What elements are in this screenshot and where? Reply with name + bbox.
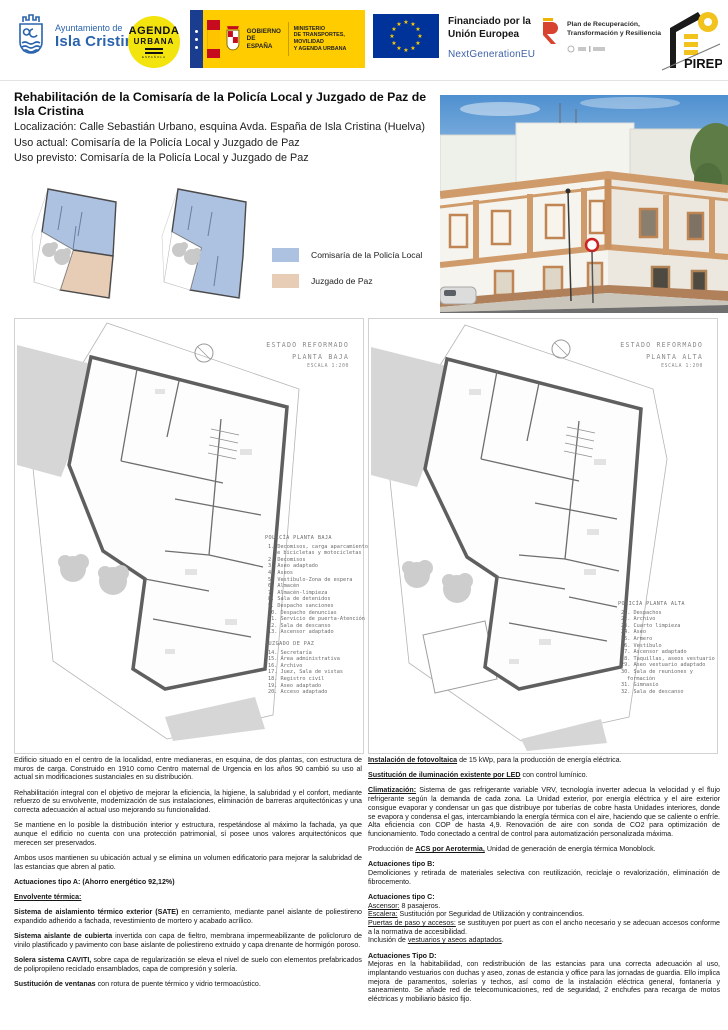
poster-page: Ayuntamiento de Isla Cristina AGENDA URB…: [0, 0, 728, 1030]
legend-label-comisaria: Comisaría de la Policía Local: [311, 250, 422, 260]
room-list-title: POLICÍA PLANTA ALTA: [618, 601, 722, 608]
room-list-item: 3. Aseo adaptado: [265, 563, 369, 570]
caption-planta: PLANTA ALTA: [620, 353, 703, 361]
room-list-policia-alta: POLICÍA PLANTA ALTA 21. Despachos22. Arc…: [618, 601, 722, 695]
mini-plan-planta-baja: [18, 186, 136, 312]
svg-text:★: ★: [403, 47, 408, 54]
paragraph: Sistema aislante de cubierta invertida c…: [14, 932, 362, 949]
ayuntamiento-logo: Ayuntamiento de Isla Cristina: [14, 12, 143, 62]
room-list-item: 25. Armero: [618, 636, 722, 643]
pirep-label: PIREP: [684, 56, 722, 71]
isla-cristina-crest-icon: [14, 12, 48, 62]
room-list-item: 30. Sala de reuniones y formación: [618, 669, 722, 682]
text-run: de 15 kWp, para la producción de energía…: [457, 756, 621, 764]
caption-escala: ESCALA 1:200: [266, 364, 349, 369]
info-uso-actual: Uso actual: Comisaría de la Policía Loca…: [14, 136, 444, 152]
room-list-item: 29. Aseo vestuario adaptado: [618, 662, 722, 669]
ministry-mini-logos-icon: [567, 45, 661, 53]
room-list-item: 23. Cuarto limpieza: [618, 623, 722, 630]
text-run: Unidad de generación de energía térmica …: [485, 845, 656, 853]
text-run: Escalera:: [368, 910, 398, 918]
spain-coat-of-arms-icon: [223, 24, 243, 54]
paragraph: Inclusión de vestuarios y aseos adaptado…: [368, 936, 720, 945]
paragraph: Instalación de fotovoltaica de 15 kWp, p…: [368, 756, 720, 765]
info-localizacion: Localización: Calle Sebastián Urbano, es…: [14, 120, 444, 136]
room-list-item: 7. Almacén-limpieza: [265, 590, 369, 597]
body-column-left: Edificio situado en el centro de la loca…: [14, 756, 362, 989]
room-list-item: 28. Taquillas, aseos vestuario: [618, 656, 722, 663]
agenda-bars-icon: [145, 48, 163, 54]
pirep-logo: PIREP: [658, 6, 722, 77]
text-run: Sustitución por Seguridad de Utilización…: [398, 910, 585, 918]
room-list-juzgado: JUZGADO DE PAZ 14. Secretaría15. Área ad…: [265, 641, 369, 696]
room-list-items: 1. Decomisos, carga aparcamiento de bici…: [265, 544, 369, 636]
svg-text:★: ★: [396, 45, 401, 52]
paragraph: Demoliciones y retirada de materiales se…: [368, 869, 720, 886]
room-list-title: JUZGADO DE PAZ: [265, 641, 369, 648]
legend: Comisaría de la Policía Local Juzgado de…: [272, 248, 422, 300]
svg-text:★: ★: [410, 45, 415, 52]
caption-planta: PLANTA BAJA: [266, 353, 349, 361]
paragraph: Edificio situado en el centro de la loca…: [14, 756, 362, 782]
room-list-item: 26. Vestíbulo: [618, 643, 722, 650]
room-list-policia-baja: POLICÍA PLANTA BAJA 1. Decomisos, carga …: [265, 535, 369, 636]
spain-flag-icon: [207, 20, 220, 58]
legend-item-comisaria: Comisaría de la Policía Local: [272, 248, 422, 262]
eu-funding-line1: Financiado por la: [448, 16, 535, 29]
ministerio-line1: MINISTERIO: [294, 26, 365, 33]
room-list-item: 13. Ascensor adaptado: [265, 629, 369, 636]
text-run: Instalación de fotovoltaica: [368, 756, 457, 764]
body-column-right: Instalación de fotovoltaica de 15 kWp, p…: [368, 756, 720, 1004]
room-list-item: 4. Aseos: [265, 570, 369, 577]
gobierno-espana-banner: GOBIERNO DE ESPAÑA MINISTERIO DE TRANSPO…: [190, 10, 365, 68]
plan-recuperacion-logo: Plan de Recuperación, Transformación y R…: [540, 18, 661, 53]
gobierno-divider: [288, 22, 289, 56]
text-run: Sustitución de ventanas: [14, 980, 96, 988]
agenda-line3: ESPAÑOLA: [142, 55, 166, 59]
eu-funding-logo: ★★★ ★★★ ★★★ ★★★ Financiado por la Unión …: [373, 14, 535, 60]
caption-estado: ESTADO REFORMADO: [620, 341, 703, 349]
svg-text:★: ★: [389, 33, 394, 40]
text-run: Actuaciones Tipo D:: [368, 952, 436, 960]
paragraph: Sistema de aislamiento térmico exterior …: [14, 908, 362, 925]
paragraph: Sustitución de iluminación existente por…: [368, 771, 720, 780]
plan-caption-alta: ESTADO REFORMADO PLANTA ALTA ESCALA 1:20…: [620, 341, 703, 369]
text-run: 8 pasajeros.: [400, 902, 441, 910]
text-run: .: [502, 936, 504, 944]
info-uso-previsto: Uso previsto: Comisaría de la Policía Lo…: [14, 151, 444, 167]
room-list-item: 12. Sala de descanso: [265, 623, 369, 630]
text-run: con control lumínico.: [521, 771, 588, 779]
plan-panel-planta-alta: ESTADO REFORMADO PLANTA ALTA ESCALA 1:20…: [368, 318, 718, 754]
plan-r-icon: [540, 18, 562, 46]
paragraph: Ambos usos mantienen su ubicación actual…: [14, 854, 362, 871]
text-run: Puertas de paso y accesos:: [368, 919, 456, 927]
eu-texts: Financiado por la Unión Europea NextGene…: [448, 14, 535, 60]
paragraph: Climatización: Sistema de gas refrigeran…: [368, 786, 720, 838]
room-list-item: 17. Juez, Sala de vistas: [265, 669, 369, 676]
text-run: Inclusión de: [368, 936, 408, 944]
text-run: Sistema de gas refrigerante variable VRV…: [368, 786, 720, 838]
text-run: Envolvente térmica:: [14, 893, 81, 901]
text-run: Actuaciones tipo C:: [368, 893, 435, 901]
room-list-item: 15. Área administrativa: [265, 656, 369, 663]
legend-swatch-juzgado: [272, 274, 299, 288]
room-list-item: 6. Almacén: [265, 583, 369, 590]
text-run: Rehabilitación integral con el objetivo …: [14, 789, 362, 814]
room-list-item: 2. Decomisos: [265, 557, 369, 564]
room-list-item: 8. Sala de detenidos: [265, 596, 369, 603]
text-run: Sistema aislante de cubierta: [14, 932, 112, 940]
caption-escala: ESCALA 1:200: [620, 364, 703, 369]
paragraph: Se mantiene en lo posible la distribució…: [14, 821, 362, 847]
building-photo: [440, 95, 728, 313]
eu-flag-icon: ★★★ ★★★ ★★★ ★★★: [373, 14, 439, 58]
logo-header: Ayuntamiento de Isla Cristina AGENDA URB…: [0, 0, 728, 80]
text-run: Ambos usos mantienen su ubicación actual…: [14, 854, 362, 871]
text-run: Ascensor:: [368, 902, 400, 910]
room-list-item: 9. Despacho sanciones: [265, 603, 369, 610]
paragraph: Actuaciones tipo B:: [368, 860, 720, 869]
gobierno-name2: DE ESPAÑA: [247, 35, 283, 49]
room-list-title: POLICÍA PLANTA BAJA: [265, 535, 369, 542]
header-separator: [0, 80, 728, 81]
room-list-item: 24. Aseo: [618, 629, 722, 636]
plan-texts: Plan de Recuperación, Transformación y R…: [567, 18, 661, 53]
legend-item-juzgado: Juzgado de Paz: [272, 274, 422, 288]
svg-text:★: ★: [417, 33, 422, 40]
caption-estado: ESTADO REFORMADO: [266, 341, 349, 349]
text-run: vestuarios y aseos adaptados: [408, 936, 502, 944]
svg-text:★: ★: [403, 19, 408, 26]
room-list-item: 1. Decomisos, carga aparcamiento de bici…: [265, 544, 369, 557]
plan-line2: Transformación y Resiliencia: [567, 30, 661, 39]
room-list-item: 22. Archivo: [618, 616, 722, 623]
room-list-item: 19. Aseo adaptado: [265, 683, 369, 690]
text-run: Mejoras en la habitabilidad, con redistr…: [368, 960, 720, 1003]
ministerio-line2: DE TRANSPORTES, MOVILIDAD: [294, 32, 365, 46]
text-run: Actuaciones tipo A: (Ahorro energético 9…: [14, 878, 175, 886]
room-list-item: 31. Gimnasio: [618, 682, 722, 689]
room-list-item: 11. Servicio de puerta-Atención: [265, 616, 369, 623]
room-list-items: 21. Despachos22. Archivo23. Cuarto limpi…: [618, 610, 722, 696]
agenda-line2: URBANA: [134, 37, 175, 46]
svg-text:★: ★: [391, 40, 396, 47]
legend-swatch-comisaria: [272, 248, 299, 262]
room-list-item: 32. Sala de descanso: [618, 689, 722, 696]
room-list-item: 21. Despachos: [618, 610, 722, 617]
paragraph: Actuaciones tipo C:: [368, 893, 720, 902]
paragraph: Puertas de paso y accesos: se sustituyen…: [368, 919, 720, 936]
text-run: Sustitución de iluminación existente por…: [368, 771, 521, 779]
text-run: Solera sistema CAVITI,: [14, 956, 91, 964]
ministerio-line3: Y AGENDA URBANA: [294, 46, 365, 53]
paragraph: Envolvente térmica:: [14, 893, 362, 902]
eu-blue-strip-icon: [190, 10, 203, 68]
paragraph: Escalera: Sustitución por Seguridad de U…: [368, 910, 720, 919]
paragraph: Mejoras en la habitabilidad, con redistr…: [368, 960, 720, 1004]
gobierno-name1: GOBIERNO: [247, 28, 283, 35]
text-run: Edificio situado en el centro de la loca…: [14, 756, 362, 781]
svg-text:★: ★: [415, 26, 420, 33]
text-run: Sistema de aislamiento térmico exterior …: [14, 908, 178, 916]
paragraph: Actuaciones tipo A: (Ahorro energético 9…: [14, 878, 362, 887]
gobierno-texts: GOBIERNO DE ESPAÑA MINISTERIO DE TRANSPO…: [247, 22, 365, 56]
text-run: Se mantiene en lo posible la distribució…: [14, 821, 362, 846]
paragraph: Rehabilitación integral con el objetivo …: [14, 789, 362, 815]
text-run: Demoliciones y retirada de materiales se…: [368, 869, 720, 886]
agenda-line1: AGENDA: [129, 25, 180, 37]
text-run: Climatización:: [368, 786, 416, 794]
paragraph: Sustitución de ventanas con rotura de pu…: [14, 980, 362, 989]
mini-plan-planta-alta: [148, 186, 266, 312]
paragraph: Producción de ACS por Aerotermia, Unidad…: [368, 845, 720, 854]
text-run: Producción de: [368, 845, 415, 853]
paragraph: Actuaciones Tipo D:: [368, 952, 720, 961]
text-run: con rotura de puente térmico y vidrio te…: [96, 980, 261, 988]
eu-funding-line2: Unión Europea: [448, 29, 535, 42]
page-title: Rehabilitación de la Comisaría de la Pol…: [14, 90, 444, 118]
svg-text:★: ★: [415, 40, 420, 47]
plan-panel-planta-baja: ESTADO REFORMADO PLANTA BAJA ESCALA 1:20…: [14, 318, 364, 754]
text-run: ACS por Aerotermia,: [415, 845, 485, 853]
paragraph: Ascensor: 8 pasajeros.: [368, 902, 720, 911]
plan-line1: Plan de Recuperación,: [567, 21, 661, 30]
svg-text:★: ★: [396, 21, 401, 28]
room-list-item: 27. Ascensor adaptado: [618, 649, 722, 656]
nextgeneration-label: NextGenerationEU: [448, 49, 535, 60]
project-info: Localización: Calle Sebastián Urbano, es…: [14, 120, 444, 167]
paragraph: Solera sistema CAVITI, sobre capa de reg…: [14, 956, 362, 973]
legend-label-juzgado: Juzgado de Paz: [311, 276, 373, 286]
room-list-item: 18. Registro civil: [265, 676, 369, 683]
room-list-item: 20. Acceso adaptado: [265, 689, 369, 696]
agenda-urbana-logo: AGENDA URBANA ESPAÑOLA: [128, 16, 180, 68]
room-list-item: 16. Archivo: [265, 663, 369, 670]
plan-caption-baja: ESTADO REFORMADO PLANTA BAJA ESCALA 1:20…: [266, 341, 349, 369]
text-run: Actuaciones tipo B:: [368, 860, 435, 868]
room-list-items: 14. Secretaría15. Área administrativa16.…: [265, 650, 369, 696]
